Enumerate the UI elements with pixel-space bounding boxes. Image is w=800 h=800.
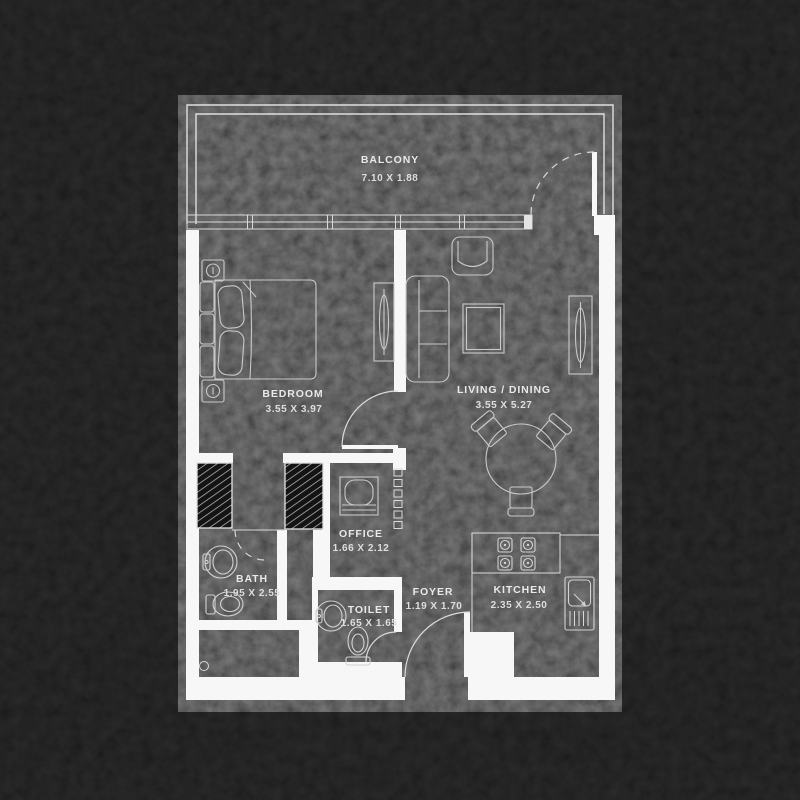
wall-right-top-stub: [594, 215, 615, 235]
wall-toilet-bottom: [312, 662, 402, 677]
foyer-label: FOYER: [413, 586, 454, 598]
wall-toilet-top: [312, 577, 402, 590]
wall-kitchen-block: [468, 632, 514, 677]
toilet-dims: 1.65 X 1.65: [341, 618, 398, 629]
kitchen-dims: 2.35 X 2.50: [491, 600, 548, 611]
living-dining-dims: 3.55 X 5.27: [476, 400, 533, 411]
bedroom-door-leaf: [342, 445, 398, 449]
balcony-dims: 7.10 X 1.88: [362, 173, 419, 184]
living-dining-label: LIVING / DINING: [457, 384, 551, 396]
toilet-label: TOILET: [348, 604, 391, 616]
window-end-post: [524, 215, 532, 229]
closet-right: [285, 463, 323, 529]
bedroom-label: BEDROOM: [262, 388, 323, 400]
wall-right: [599, 233, 615, 700]
bath-dims: 1.95 X 2.55: [224, 588, 281, 599]
wall-bedroom-closet-right: [283, 453, 402, 463]
closet-left: [197, 463, 232, 528]
wall-utility-right: [299, 620, 313, 677]
foyer-dims: 1.19 X 1.70: [406, 601, 463, 612]
entry-door-leaf: [464, 612, 470, 677]
kitchen-label: KITCHEN: [494, 584, 547, 596]
bedroom-dims: 3.55 X 3.97: [266, 404, 323, 415]
wall-bottom-right: [468, 677, 615, 700]
wall-bath-bottom: [199, 620, 299, 630]
balcony-door-leaf: [592, 152, 597, 216]
wall-bedroom-closet-left: [199, 453, 233, 463]
floor-plan: BEDROOM 3.55 X 3.97: [0, 0, 800, 800]
balcony-label: BALCONY: [361, 154, 419, 166]
office-label: OFFICE: [339, 528, 383, 540]
floor-plan-canvas: BEDROOM 3.55 X 3.97: [0, 0, 800, 800]
wall-bottom-left: [186, 677, 405, 700]
wall-bath-right: [277, 530, 287, 622]
wall-shaft-right: [313, 530, 330, 577]
office-dims: 1.66 X 2.12: [333, 543, 390, 554]
bath-label: BATH: [236, 573, 268, 585]
wall-bedroom-living: [394, 230, 406, 392]
